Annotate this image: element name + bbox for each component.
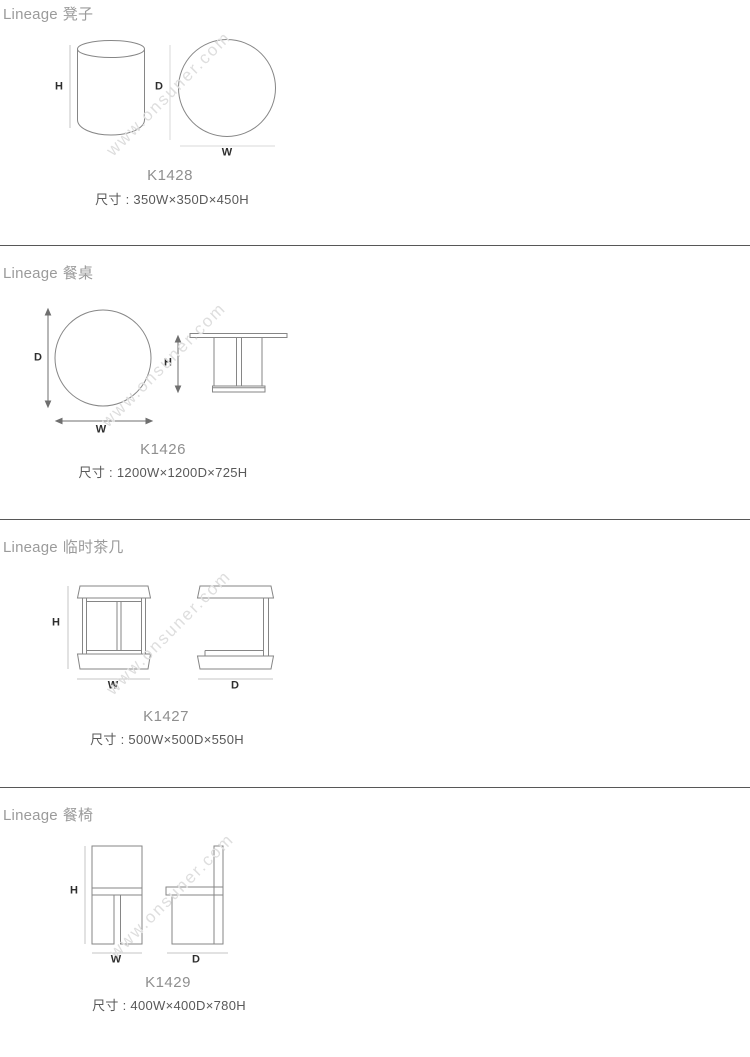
- dim-label-height: H: [70, 886, 78, 897]
- dining-chair-drawing: [0, 788, 750, 1057]
- dim-label-width: W: [96, 425, 106, 436]
- model-number: K1429: [0, 974, 336, 991]
- dim-label-depth: D: [231, 681, 239, 692]
- stool-drawing: [0, 0, 750, 245]
- model-number: K1427: [0, 708, 332, 725]
- size-spec: 尺寸 : 500W×500D×550H: [0, 729, 334, 748]
- model-number: K1426: [0, 441, 326, 458]
- product-section-dining-chair: Lineage餐椅 H W D www: [0, 787, 750, 1057]
- dim-label-height: H: [164, 358, 172, 369]
- dim-label-width: W: [108, 681, 118, 692]
- product-section-stool: Lineage凳子 H D W www.onsuner.com K1428 尺寸…: [0, 0, 750, 245]
- dim-label-height: H: [55, 82, 63, 93]
- dim-label-depth: D: [192, 955, 200, 966]
- dim-label-height: H: [52, 618, 60, 629]
- dim-label-width: W: [222, 148, 232, 159]
- size-spec: 尺寸 : 1200W×1200D×725H: [0, 462, 326, 481]
- dim-label-depth: D: [34, 353, 42, 364]
- dim-label-width: W: [111, 955, 121, 966]
- dim-label-depth: D: [155, 82, 163, 93]
- size-spec: 尺寸 : 350W×350D×450H: [0, 189, 344, 208]
- size-spec: 尺寸 : 400W×400D×780H: [0, 995, 338, 1014]
- spec-sheet-page: Lineage凳子 H D W www.onsuner.com K1428 尺寸…: [0, 0, 750, 1057]
- product-section-dining-table: Lineage餐桌: [0, 245, 750, 519]
- product-section-side-table: Lineage临时茶几: [0, 519, 750, 787]
- model-number: K1428: [0, 167, 340, 184]
